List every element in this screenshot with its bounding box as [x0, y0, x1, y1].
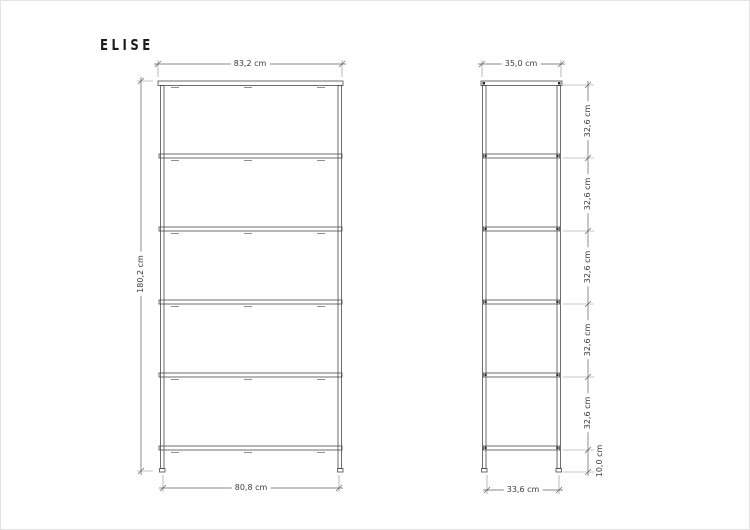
- front-left-post: [161, 86, 165, 469]
- front-shelf-5: [159, 373, 342, 377]
- side-shelf-2: [484, 154, 560, 158]
- front-right-foot: [338, 469, 344, 473]
- dim-shelf-spacing-2-label: 32,6 cm: [583, 175, 593, 214]
- side-shelf-3: [484, 227, 560, 231]
- side-left-post: [483, 86, 487, 469]
- front-shelf-6: [159, 446, 342, 450]
- front-shelf-4: [159, 300, 342, 304]
- side-right-foot: [556, 469, 562, 473]
- dim-shelf-spacing-4-label: 32,6 cm: [583, 321, 593, 360]
- technical-drawing-page: ELISE: [0, 0, 750, 530]
- dim-shelf-spacing-1-label: 32,6 cm: [583, 102, 593, 141]
- front-view-drawing: [158, 81, 343, 472]
- dim-front-top-width-label: 83,2 cm: [231, 59, 270, 69]
- dimension-lines: [137, 60, 594, 494]
- side-top-shelf: [481, 81, 562, 86]
- dim-side-bottom-depth-label: 33,6 cm: [504, 485, 543, 495]
- front-top-shelf: [158, 81, 343, 86]
- dim-front-bottom-width-label: 80,8 cm: [232, 483, 271, 493]
- side-left-foot: [482, 469, 488, 473]
- dim-front-height-label: 180,2 cm: [136, 252, 146, 296]
- front-connector-marks: [171, 88, 325, 453]
- side-right-post: [557, 86, 561, 469]
- side-shelf-6: [484, 446, 560, 450]
- front-shelf-3: [159, 227, 342, 231]
- dim-shelf-spacing-3-label: 32,6 cm: [583, 248, 593, 287]
- dim-shelf-spacing-5-label: 32,6 cm: [583, 394, 593, 433]
- side-joint-pins: [483, 82, 561, 449]
- dim-side-top-depth-label: 35,0 cm: [502, 59, 541, 69]
- side-shelf-5: [484, 373, 560, 377]
- dim-base-height-label: 10,0 cm: [595, 442, 605, 481]
- front-right-post: [338, 86, 342, 469]
- front-left-foot: [160, 469, 166, 473]
- side-shelf-4: [484, 300, 560, 304]
- side-view-drawing: [481, 81, 562, 472]
- shelf-drawing: [1, 1, 750, 530]
- front-shelf-2: [159, 154, 342, 158]
